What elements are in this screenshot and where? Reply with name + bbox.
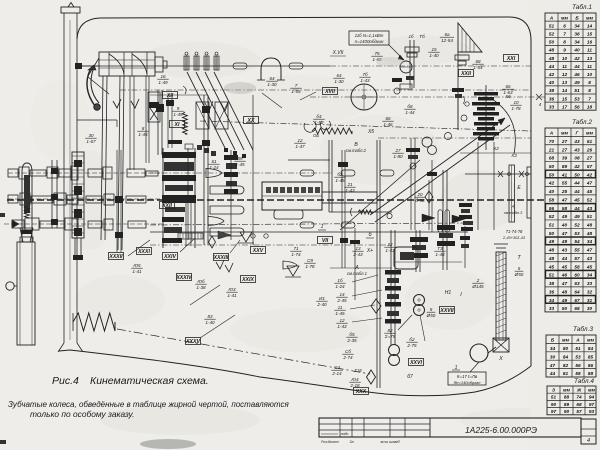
svg-text:56: 56 — [549, 206, 555, 211]
svg-text:б7: б7 — [407, 374, 413, 380]
svg-text:1-67: 1-67 — [86, 139, 96, 144]
svg-text:58: 58 — [562, 206, 568, 211]
svg-text:38: 38 — [549, 88, 555, 93]
svg-text:14: 14 — [587, 23, 593, 28]
svg-text:53: 53 — [575, 354, 581, 359]
svg-text:41: 41 — [561, 172, 568, 177]
svg-text:16: 16 — [160, 74, 166, 79]
svg-text:44: 44 — [573, 64, 580, 69]
svg-text:1-45: 1-45 — [335, 178, 345, 183]
svg-text:Рис.4: Рис.4 — [52, 375, 79, 387]
svg-text:1А225-6.00.000РЭ: 1А225-6.00.000РЭ — [465, 425, 537, 435]
svg-text:Рип.длинст: Рип.длинст — [321, 440, 339, 444]
svg-text:XXXIV: XXXIV — [175, 275, 192, 281]
svg-text:А: А — [549, 131, 554, 136]
svg-text:1-45: 1-45 — [235, 162, 245, 167]
svg-text:51: 51 — [549, 23, 555, 28]
svg-text:22: 22 — [386, 242, 393, 247]
svg-text:58: 58 — [575, 371, 581, 376]
svg-text:34: 34 — [549, 298, 555, 303]
svg-text:б2: б2 — [409, 337, 415, 342]
svg-text:10: 10 — [513, 100, 519, 105]
svg-text:39: 39 — [562, 156, 568, 161]
svg-text:С9: С9 — [307, 258, 313, 263]
svg-text:47: 47 — [561, 197, 568, 202]
svg-text:11: 11 — [587, 64, 592, 69]
svg-text:10: 10 — [587, 72, 593, 77]
svg-text:XXIV: XXIV — [163, 254, 176, 260]
svg-text:36: 36 — [549, 289, 555, 294]
svg-text:3л.: 3л. — [349, 440, 354, 444]
svg-text:11: 11 — [562, 64, 567, 69]
svg-text:Ø50: Ø50 — [514, 272, 524, 277]
svg-text:13: 13 — [562, 80, 568, 85]
svg-text:1-78: 1-78 — [305, 264, 315, 269]
svg-text:8: 8 — [563, 40, 566, 45]
svg-text:1-80: 1-80 — [393, 154, 403, 159]
svg-text:47: 47 — [561, 281, 568, 286]
svg-text:11б N=1,1кВт: 11б N=1,1кВт — [355, 33, 384, 38]
svg-text:Ø50: Ø50 — [426, 313, 436, 318]
svg-text:1б: 1б — [337, 278, 343, 283]
svg-text:1-45: 1-45 — [138, 132, 148, 137]
svg-text:Ю5: Ю5 — [133, 263, 141, 268]
svg-text:1б: 1б — [409, 34, 414, 39]
svg-text:1-30: 1-30 — [267, 82, 277, 87]
svg-text:1-41: 1-41 — [132, 269, 142, 274]
svg-text:Зубчатые колеса, обведённые в: Зубчатые колеса, обведённые в таблице жи… — [8, 400, 289, 409]
svg-text:XXXII: XXXII — [108, 254, 123, 260]
svg-text:Σ18: Σ18 — [353, 368, 362, 373]
svg-text:XXX: XXX — [355, 389, 367, 395]
svg-text:1-45: 1-45 — [173, 112, 183, 117]
svg-text:64: 64 — [336, 73, 342, 78]
svg-text:1-47: 1-47 — [295, 144, 305, 149]
svg-text:XII: XII — [166, 93, 174, 99]
svg-text:56: 56 — [574, 104, 580, 109]
svg-text:38: 38 — [549, 281, 555, 286]
svg-text:XXII: XXII — [161, 203, 172, 209]
svg-text:51: 51 — [549, 273, 555, 278]
svg-text:Юб: Юб — [197, 279, 205, 284]
svg-text:см.табл.2: см.табл.2 — [346, 148, 367, 153]
svg-text:93: 93 — [589, 409, 595, 414]
svg-text:44: 44 — [573, 181, 580, 186]
svg-text:Ян=140образн: Ян=140образн — [453, 380, 482, 385]
svg-text:40: 40 — [548, 80, 555, 85]
svg-text:49: 49 — [573, 80, 580, 85]
svg-text:53: 53 — [574, 96, 580, 101]
svg-text:47: 47 — [586, 248, 593, 253]
svg-text:12: 12 — [297, 138, 303, 143]
svg-text:48: 48 — [548, 48, 555, 53]
svg-text:50: 50 — [549, 172, 555, 177]
svg-text:36: 36 — [574, 32, 580, 37]
svg-text:8: 8 — [588, 80, 591, 85]
svg-text:5: 5 — [430, 307, 433, 312]
svg-text:45: 45 — [586, 264, 593, 269]
svg-text:42: 42 — [548, 181, 555, 186]
svg-text:68: 68 — [576, 402, 582, 407]
svg-text:13: 13 — [355, 246, 361, 251]
svg-text:82: 82 — [387, 328, 393, 333]
svg-text:15: 15 — [587, 32, 593, 37]
svg-text:49: 49 — [561, 214, 568, 219]
svg-text:б4: б4 — [316, 114, 322, 119]
svg-text:мм: мм — [563, 387, 570, 392]
svg-text:21: 21 — [548, 147, 555, 152]
svg-text:42: 42 — [586, 172, 593, 177]
svg-text:30: 30 — [550, 354, 556, 359]
svg-text:46: 46 — [561, 273, 568, 278]
svg-text:27: 27 — [561, 147, 568, 152]
svg-text:VII: VII — [322, 238, 329, 244]
svg-text:7: 7 — [295, 83, 298, 88]
svg-text:6: 6 — [563, 23, 566, 28]
svg-text:44: 44 — [549, 371, 556, 376]
svg-text:45: 45 — [586, 189, 593, 194]
svg-text:51: 51 — [574, 88, 580, 93]
svg-text:6а: 6а — [444, 32, 450, 37]
svg-text:1-30: 1-30 — [334, 79, 344, 84]
svg-text:Кинематическая схема.: Кинематическая схема. — [90, 375, 209, 387]
svg-text:51: 51 — [587, 214, 593, 219]
svg-text:Ю3: Ю3 — [228, 287, 236, 292]
svg-text:15: 15 — [562, 96, 568, 101]
svg-text:66: 66 — [505, 84, 511, 89]
svg-text:97: 97 — [551, 409, 557, 414]
svg-text:43: 43 — [586, 206, 593, 211]
svg-text:34: 34 — [574, 40, 580, 45]
svg-text:9: 9 — [177, 106, 180, 111]
svg-text:1-78: 1-78 — [511, 106, 521, 111]
svg-text:88: 88 — [564, 395, 570, 400]
svg-text:1-38: 1-38 — [196, 285, 206, 290]
svg-text:Сб: Сб — [345, 349, 351, 354]
svg-text:48: 48 — [586, 231, 593, 236]
svg-text:З: З — [552, 387, 555, 392]
svg-text:43: 43 — [573, 139, 580, 144]
svg-text:85: 85 — [588, 354, 594, 359]
svg-text:эти шамб: эти шамб — [380, 439, 400, 444]
svg-text:60: 60 — [574, 273, 580, 278]
svg-text:59: 59 — [237, 156, 243, 161]
svg-text:45: 45 — [548, 264, 555, 269]
svg-text:Табл.4: Табл.4 — [574, 377, 594, 385]
svg-text:1: 1 — [321, 224, 324, 230]
svg-text:34: 34 — [587, 273, 593, 278]
svg-text:71: 71 — [293, 246, 299, 251]
svg-text:68: 68 — [549, 156, 555, 161]
svg-text:40: 40 — [561, 223, 568, 228]
svg-text:68: 68 — [574, 306, 580, 311]
svg-text:67: 67 — [574, 298, 580, 303]
svg-text:55: 55 — [574, 248, 580, 253]
svg-text:1-55: 1-55 — [291, 89, 301, 94]
svg-text:51: 51 — [551, 395, 557, 400]
svg-text:27: 27 — [394, 148, 401, 153]
svg-text:33: 33 — [549, 104, 555, 109]
svg-text:Х: Х — [498, 356, 503, 362]
svg-text:Табл.1: Табл.1 — [572, 3, 592, 11]
svg-text:68: 68 — [475, 59, 481, 64]
svg-text:49: 49 — [573, 214, 580, 219]
svg-text:Х.VII: Х.VII — [332, 50, 344, 56]
svg-text:К=17 t=Лв: К=17 t=Лв — [457, 374, 478, 379]
svg-text:14: 14 — [339, 292, 345, 297]
svg-text:Σ=75: Σ=75 — [384, 334, 396, 339]
svg-text:13: 13 — [587, 56, 593, 61]
svg-text:08: 08 — [574, 156, 580, 161]
svg-text:Табл.2: Табл.2 — [572, 118, 592, 126]
svg-text:см.табл.1: см.табл.1 — [347, 271, 367, 276]
svg-text:XXI: XXI — [506, 56, 516, 62]
svg-text:40: 40 — [573, 48, 580, 53]
svg-text:2: 2 — [476, 278, 480, 283]
svg-text:86: 86 — [588, 363, 594, 368]
svg-text:94: 94 — [589, 395, 595, 400]
svg-text:А: А — [510, 204, 514, 209]
svg-text:XXV: XXV — [252, 248, 264, 254]
svg-text:XVII: XVII — [324, 89, 335, 95]
svg-text:58: 58 — [549, 197, 555, 202]
svg-text:42: 42 — [573, 164, 580, 169]
svg-text:А: А — [549, 15, 554, 20]
svg-text:мм: мм — [561, 131, 568, 136]
svg-text:40: 40 — [548, 189, 555, 194]
svg-text:мм: мм — [586, 15, 593, 20]
svg-text:47: 47 — [561, 231, 568, 236]
svg-text:2-14: 2-14 — [331, 371, 342, 376]
svg-text:2-45: 2-45 — [336, 298, 347, 303]
svg-text:49: 49 — [561, 298, 568, 303]
svg-text:1-43: 1-43 — [345, 188, 355, 193]
svg-text:ТЗ: ТЗ — [437, 246, 443, 251]
svg-text:52: 52 — [574, 223, 580, 228]
svg-text:48: 48 — [548, 56, 555, 61]
svg-text:57: 57 — [574, 256, 580, 261]
svg-text:XXII: XXII — [460, 71, 471, 77]
svg-text:52: 52 — [549, 214, 555, 219]
svg-text:А: А — [575, 338, 580, 343]
svg-text:57: 57 — [587, 164, 593, 169]
svg-text:81: 81 — [563, 371, 569, 376]
svg-text:50: 50 — [549, 164, 555, 169]
svg-text:2-43: 2-43 — [352, 252, 363, 257]
svg-text:30: 30 — [587, 306, 593, 311]
svg-text:10: 10 — [562, 56, 568, 61]
svg-text:б-58: б-58 — [415, 198, 425, 203]
svg-text:1-40: 1-40 — [429, 53, 439, 58]
svg-text:мм: мм — [561, 15, 568, 20]
svg-text:XX: XX — [247, 118, 255, 124]
svg-text:27: 27 — [586, 156, 593, 161]
svg-text:50: 50 — [549, 231, 555, 236]
svg-text:50: 50 — [549, 40, 555, 45]
svg-text:88: 88 — [588, 371, 594, 376]
svg-text:7б: 7б — [362, 72, 368, 77]
svg-text:90: 90 — [564, 409, 570, 414]
svg-text:44: 44 — [561, 256, 568, 261]
svg-text:43: 43 — [586, 256, 593, 261]
svg-text:33: 33 — [587, 281, 593, 286]
svg-text:48: 48 — [548, 248, 555, 253]
svg-text:56: 56 — [575, 363, 581, 368]
svg-text:16: 16 — [587, 40, 593, 45]
svg-text:5: 5 — [518, 266, 521, 271]
svg-text:45: 45 — [573, 197, 580, 202]
svg-text:Тб: Тб — [419, 34, 425, 39]
svg-text:90: 90 — [551, 402, 557, 407]
svg-text:48: 48 — [548, 256, 555, 261]
svg-text:см.табл.3: см.табл.3 — [504, 210, 523, 215]
svg-text:Ж: Ж — [576, 387, 582, 392]
svg-text:26: 26 — [586, 147, 593, 152]
svg-text:17: 17 — [562, 104, 568, 109]
svg-text:44: 44 — [573, 189, 580, 194]
svg-text:63: 63 — [574, 281, 580, 286]
svg-text:97: 97 — [589, 402, 595, 407]
svg-text:18: 18 — [587, 104, 593, 109]
svg-text:1-74: 1-74 — [291, 252, 301, 257]
svg-text:Ю4: Ю4 — [351, 377, 359, 382]
svg-text:33: 33 — [549, 306, 555, 311]
svg-text:34: 34 — [550, 346, 556, 351]
svg-text:71-74-78: 71-74-78 — [506, 229, 523, 234]
svg-text:36: 36 — [549, 96, 555, 101]
svg-text:1-49: 1-49 — [158, 80, 168, 85]
svg-text:44: 44 — [548, 64, 555, 69]
svg-text:Ø145: Ø145 — [471, 284, 484, 289]
svg-text:2-35: 2-35 — [346, 338, 357, 343]
svg-text:51: 51 — [549, 223, 555, 228]
svg-text:80: 80 — [563, 346, 569, 351]
svg-text:nодn.: nодn. — [341, 432, 350, 436]
svg-text:1-41: 1-41 — [227, 293, 237, 298]
svg-text:84: 84 — [563, 354, 569, 359]
svg-text:1-40: 1-40 — [205, 320, 215, 325]
svg-text:45: 45 — [561, 264, 568, 269]
svg-text:61: 61 — [587, 139, 593, 144]
svg-text:30: 30 — [88, 133, 94, 138]
svg-text:53: 53 — [574, 231, 580, 236]
svg-text:64: 64 — [269, 76, 275, 81]
svg-text:43: 43 — [573, 147, 580, 152]
svg-text:XXIX: XXIX — [241, 277, 254, 283]
svg-text:мм: мм — [586, 131, 593, 136]
svg-text:Х5: Х5 — [367, 129, 374, 135]
svg-text:34: 34 — [587, 239, 593, 244]
svg-text:52: 52 — [549, 32, 555, 37]
svg-text:66: 66 — [385, 116, 391, 121]
svg-text:51: 51 — [575, 346, 581, 351]
svg-text:Н1: Н1 — [445, 290, 452, 296]
svg-text:7: 7 — [563, 32, 566, 37]
svg-text:48: 48 — [586, 223, 593, 228]
svg-text:XXXV: XXXV — [185, 339, 200, 345]
svg-text:64: 64 — [574, 289, 580, 294]
svg-text:1-43: 1-43 — [337, 324, 347, 329]
svg-text:XXXIII: XXXIII — [213, 255, 229, 261]
svg-text:58: 58 — [574, 264, 580, 269]
svg-text:75: 75 — [374, 51, 380, 56]
svg-text:Σ-40+30Σ-43: Σ-40+30Σ-43 — [502, 236, 526, 240]
svg-text:Х6: Х6 — [504, 94, 511, 99]
svg-text:2-75: 2-75 — [406, 343, 417, 348]
svg-text:50: 50 — [574, 172, 580, 177]
svg-text:мм: мм — [562, 338, 569, 343]
svg-text:84: 84 — [588, 346, 594, 351]
svg-text:31: 31 — [587, 298, 593, 303]
svg-text:34: 34 — [574, 23, 580, 28]
svg-text:XXXI: XXXI — [137, 249, 150, 255]
svg-text:XXVII: XXVII — [439, 308, 454, 314]
svg-text:11: 11 — [587, 48, 592, 53]
svg-text:83: 83 — [207, 314, 213, 319]
svg-text:И1: И1 — [319, 296, 325, 301]
svg-text:12: 12 — [339, 318, 345, 323]
svg-text:Х3: Х3 — [510, 153, 517, 158]
svg-text:44: 44 — [573, 206, 580, 211]
svg-text:46: 46 — [573, 72, 580, 77]
svg-text:20: 20 — [416, 192, 423, 197]
svg-text:47: 47 — [586, 181, 593, 186]
svg-text:Х2: Х2 — [492, 146, 499, 151]
svg-text:89: 89 — [562, 164, 568, 169]
svg-text:42: 42 — [573, 56, 580, 61]
svg-text:7: 7 — [588, 96, 591, 101]
svg-text:55: 55 — [562, 181, 568, 186]
svg-text:32: 32 — [587, 289, 593, 294]
svg-text:9: 9 — [563, 48, 566, 53]
svg-text:89: 89 — [564, 402, 570, 407]
svg-text:70: 70 — [549, 139, 555, 144]
svg-text:мм: мм — [587, 338, 594, 343]
svg-text:42: 42 — [548, 72, 555, 77]
svg-text:49: 49 — [561, 239, 568, 244]
svg-text:74: 74 — [576, 395, 582, 400]
svg-text:15: 15 — [431, 47, 437, 52]
svg-text:47: 47 — [549, 363, 556, 368]
svg-text:12: 12 — [562, 72, 568, 77]
svg-text:21: 21 — [346, 182, 353, 187]
svg-text:1-46: 1-46 — [383, 122, 393, 127]
svg-text:мм: мм — [588, 387, 595, 392]
svg-text:1-24: 1-24 — [335, 284, 345, 289]
svg-text:43: 43 — [561, 248, 568, 253]
svg-text:54: 54 — [574, 239, 580, 244]
svg-text:1-54: 1-54 — [473, 65, 483, 70]
svg-text:4: 4 — [587, 438, 590, 444]
svg-text:б5: б5 — [349, 332, 355, 337]
svg-text:2-74: 2-74 — [342, 355, 353, 360]
svg-text:49: 49 — [548, 239, 555, 244]
svg-text:48: 48 — [561, 289, 568, 294]
svg-text:Табл.3: Табл.3 — [573, 325, 593, 333]
svg-text:1-24: 1-24 — [209, 165, 219, 170]
svg-text:С4: С4 — [334, 365, 340, 370]
svg-text:8: 8 — [588, 88, 591, 93]
svg-text:1-48: 1-48 — [435, 252, 445, 257]
svg-text:27: 27 — [561, 139, 568, 144]
svg-text:XI: XI — [174, 122, 180, 128]
svg-text:2-40: 2-40 — [316, 302, 327, 307]
svg-text:Х+: Х+ — [366, 248, 373, 254]
svg-text:61: 61 — [211, 159, 217, 164]
svg-text:2-18: 2-18 — [349, 383, 360, 388]
svg-text:только по особому зак: только по особому заказу. — [30, 409, 135, 419]
svg-text:57: 57 — [576, 409, 582, 414]
